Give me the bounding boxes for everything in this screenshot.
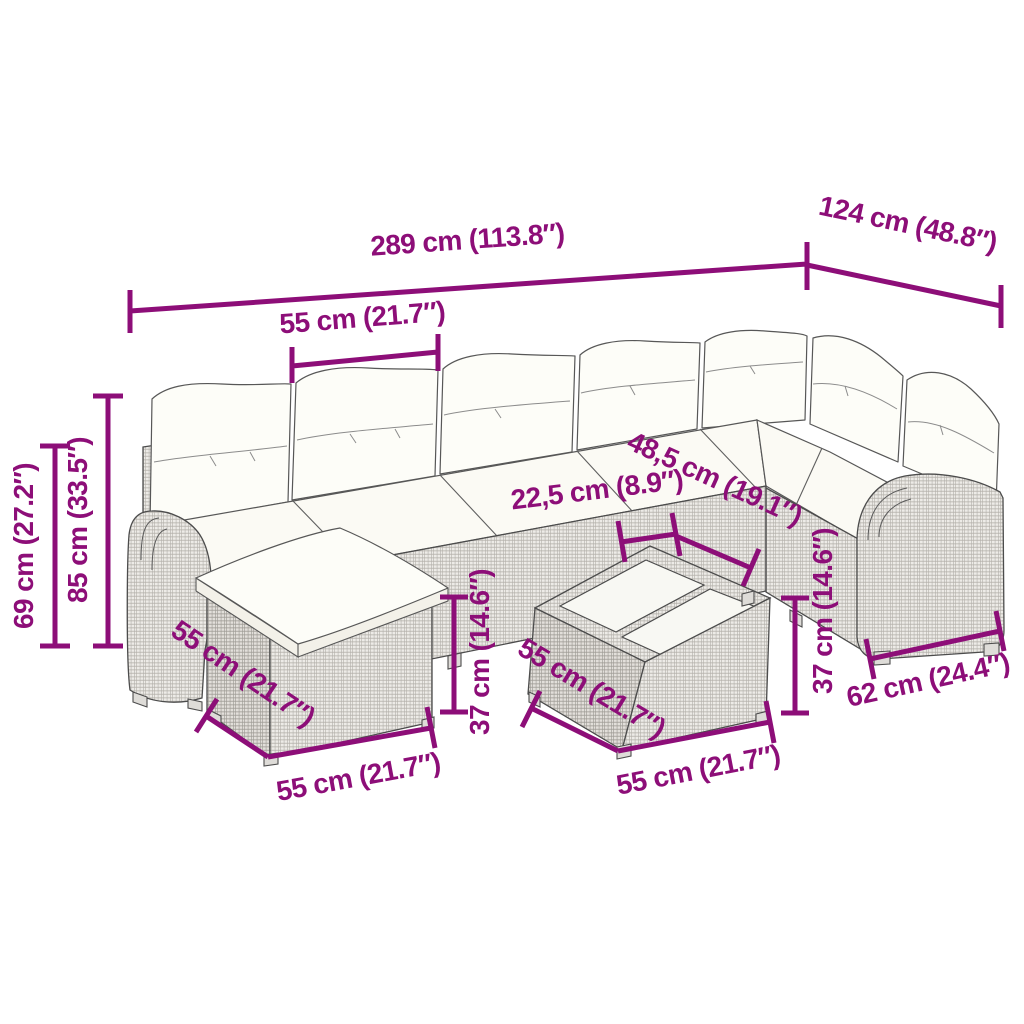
left-armrest: [127, 511, 211, 702]
dim-wing-length: 124 cm (48.8″): [807, 190, 1001, 328]
dim-ottoman-front-length-label: 55 cm (21.7″): [274, 746, 443, 807]
dim-back-height-label: 85 cm (33.5″): [62, 437, 93, 603]
dim-seat-width-label: 55 cm (21.7″): [278, 296, 446, 340]
dim-wing-length-label: 124 cm (48.8″): [816, 190, 999, 258]
dim-armrest-height-label: 69 cm (27.2″): [8, 463, 39, 629]
dim-total-length-label: 289 cm (113.8″): [369, 217, 565, 261]
dim-total-length: 289 cm (113.8″): [130, 217, 807, 333]
back-cushion: [810, 336, 903, 462]
diagram-stage: 289 cm (113.8″) 124 cm (48.8″) 55 cm (21…: [0, 0, 1024, 1024]
right-armrest: [857, 474, 1004, 659]
dim-ottoman-height-label: 37 cm (14.6″): [464, 569, 495, 735]
dim-armrest-height: 69 cm (27.2″): [8, 446, 70, 646]
dim-back-height: 85 cm (33.5″): [62, 396, 123, 646]
dimension-diagram-canvas: 289 cm (113.8″) 124 cm (48.8″) 55 cm (21…: [0, 0, 1024, 1024]
back-cushion: [702, 330, 807, 428]
dim-table-height-label: 37 cm (14.6″): [807, 528, 838, 694]
